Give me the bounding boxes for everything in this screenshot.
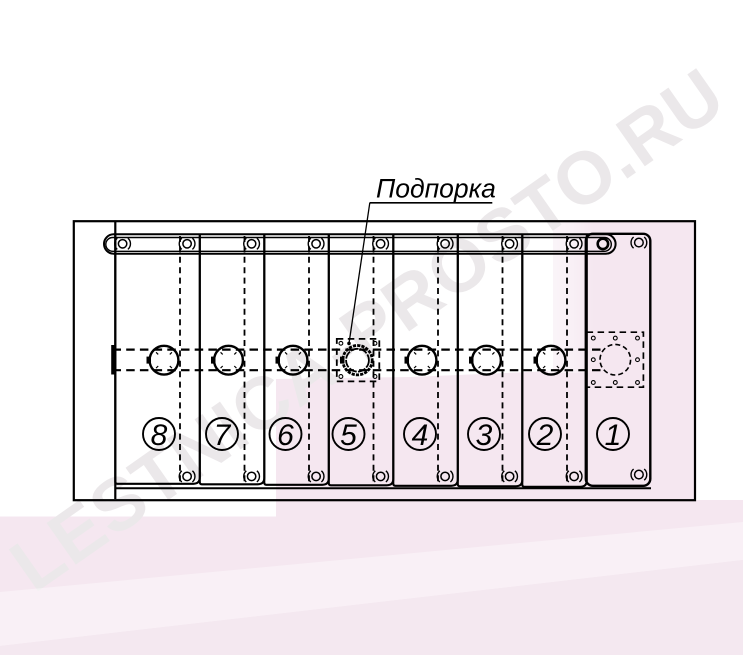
svg-text:6: 6 bbox=[277, 419, 294, 452]
svg-text:8: 8 bbox=[151, 419, 168, 452]
svg-text:5: 5 bbox=[340, 419, 357, 452]
svg-text:7: 7 bbox=[214, 419, 232, 452]
svg-text:3: 3 bbox=[476, 419, 493, 452]
svg-text:2: 2 bbox=[536, 419, 554, 452]
svg-text:1: 1 bbox=[605, 419, 622, 452]
svg-text:Подпорка: Подпорка bbox=[376, 174, 496, 204]
svg-text:4: 4 bbox=[412, 419, 429, 452]
